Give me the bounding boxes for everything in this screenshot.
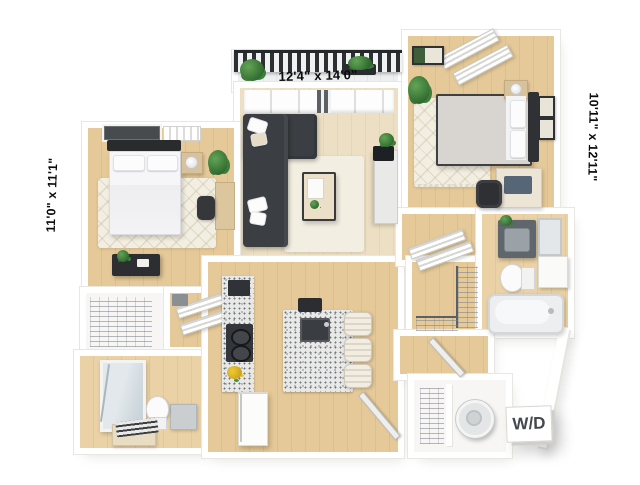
dresser-tray bbox=[137, 259, 149, 267]
bed-pillow bbox=[113, 155, 145, 171]
wall-art-frame bbox=[538, 118, 555, 140]
kitchen-microwave bbox=[228, 280, 250, 296]
wire-shelving-right-closet bbox=[416, 316, 458, 331]
sliding-door-mullion bbox=[317, 90, 331, 113]
bedroom-left-window-curtain bbox=[163, 126, 201, 141]
cooktop-burner bbox=[231, 329, 251, 346]
vanity-sink bbox=[504, 228, 530, 252]
washer-dryer-label: W/D bbox=[505, 405, 552, 443]
bedroom-left-desk bbox=[215, 182, 235, 230]
bed-pillow bbox=[510, 100, 526, 128]
bathroom-mirror bbox=[538, 218, 562, 256]
sofa-pillow bbox=[250, 132, 268, 148]
bedroom-right-headboard bbox=[528, 92, 539, 162]
cooktop-burner bbox=[231, 345, 251, 362]
vanity-plant bbox=[500, 215, 512, 226]
table-lamp bbox=[185, 156, 198, 169]
bedroom-right-plant bbox=[408, 76, 430, 104]
tv-corner-plant bbox=[379, 133, 394, 147]
bedroom-right-dimensions-label: 10'11" x 12'11" bbox=[585, 78, 601, 196]
coffee-table-tray bbox=[307, 178, 324, 199]
bathtub-basin bbox=[495, 300, 550, 324]
bed-pillow bbox=[147, 155, 178, 171]
wall-art-frame bbox=[538, 96, 555, 118]
laundry-divider-wall bbox=[446, 384, 452, 446]
bar-stool bbox=[344, 312, 372, 336]
bathroom-left-sink-cabinet bbox=[170, 404, 197, 430]
bed-pillow bbox=[510, 130, 526, 158]
living-room-dimensions-label: 12'4" x 14'0" bbox=[258, 66, 378, 84]
wire-shelving-left-closet bbox=[90, 297, 152, 347]
washer-door bbox=[466, 410, 482, 426]
laundry-shelving bbox=[420, 388, 444, 444]
toilet-tank bbox=[521, 267, 535, 290]
bar-stool bbox=[344, 364, 372, 388]
refrigerator-handles bbox=[240, 394, 242, 442]
flower-vase bbox=[227, 366, 242, 379]
desk-monitor bbox=[504, 176, 532, 194]
office-chair bbox=[476, 180, 502, 208]
coffee-table-plant bbox=[310, 200, 319, 209]
island-appliance bbox=[298, 298, 322, 312]
tv-stand bbox=[374, 150, 398, 224]
bedroom-left-headboard bbox=[107, 140, 181, 151]
bar-stool bbox=[344, 338, 372, 362]
refrigerator bbox=[238, 392, 268, 446]
wire-shelving-right-closet bbox=[456, 266, 478, 328]
tub-faucet bbox=[548, 308, 554, 314]
bathroom-cabinet bbox=[538, 256, 568, 288]
bedroom-left-plant bbox=[208, 150, 228, 175]
bedroom-left-desk-chair bbox=[197, 196, 215, 220]
sink-faucet bbox=[324, 322, 329, 327]
sofa-pillow bbox=[249, 211, 267, 227]
table-lamp bbox=[510, 83, 522, 95]
tv bbox=[373, 146, 394, 161]
bedroom-left-dimensions-label: 11'0" x 11'1" bbox=[43, 139, 61, 251]
floorplan-render: 12'4" x 14'0" 11'0" x 11'1" 10'11" x 12'… bbox=[0, 0, 640, 485]
dresser-plant bbox=[117, 250, 129, 262]
closet-storage-box bbox=[172, 294, 188, 306]
wall-art-frame bbox=[412, 46, 444, 65]
